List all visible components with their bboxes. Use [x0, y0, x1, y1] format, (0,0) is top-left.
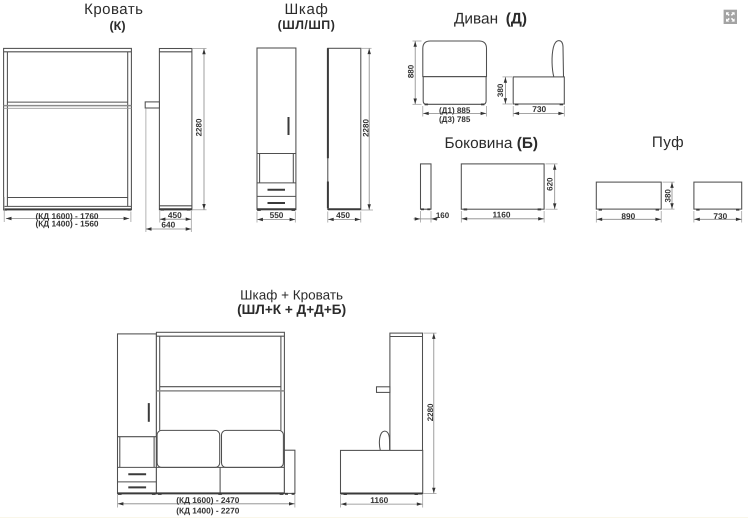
svg-text:1160: 1160 — [493, 210, 511, 220]
svg-text:(К): (К) — [109, 19, 125, 33]
svg-text:(Д3) 785: (Д3) 785 — [439, 115, 471, 124]
svg-text:2280: 2280 — [426, 403, 435, 421]
svg-text:450: 450 — [336, 210, 350, 220]
svg-text:2280: 2280 — [362, 119, 371, 137]
svg-text:(Д1) 885: (Д1) 885 — [439, 106, 471, 115]
svg-text:730: 730 — [713, 211, 727, 221]
svg-text:450: 450 — [168, 210, 182, 220]
svg-text:640: 640 — [161, 220, 175, 230]
svg-text:Диван (Д): Диван (Д) — [454, 11, 527, 28]
svg-text:Шкаф + Кровать: Шкаф + Кровать — [240, 288, 343, 303]
svg-text:890: 890 — [621, 211, 635, 221]
svg-text:Боковина (Б): Боковина (Б) — [445, 135, 539, 152]
svg-text:550: 550 — [270, 210, 284, 220]
svg-text:(КД 1600) - 2470: (КД 1600) - 2470 — [176, 495, 239, 505]
svg-text:380: 380 — [496, 83, 505, 97]
svg-text:(КД 1400) - 2270: (КД 1400) - 2270 — [176, 505, 239, 515]
svg-text:1160: 1160 — [370, 495, 388, 505]
svg-text:(ШЛ/ШП): (ШЛ/ШП) — [278, 18, 336, 32]
svg-text:160: 160 — [436, 211, 450, 220]
svg-text:730: 730 — [532, 104, 546, 114]
svg-text:Шкаф: Шкаф — [284, 1, 328, 18]
svg-text:(ШЛ+К + Д+Д+Б): (ШЛ+К + Д+Д+Б) — [237, 302, 346, 317]
svg-text:2280: 2280 — [195, 118, 204, 136]
svg-text:(КД 1400) - 1560: (КД 1400) - 1560 — [35, 219, 98, 229]
svg-text:380: 380 — [664, 189, 673, 203]
svg-text:880: 880 — [407, 64, 416, 78]
svg-text:Пуф: Пуф — [652, 134, 684, 151]
svg-text:620: 620 — [545, 177, 554, 191]
svg-text:Кровать: Кровать — [84, 1, 143, 18]
